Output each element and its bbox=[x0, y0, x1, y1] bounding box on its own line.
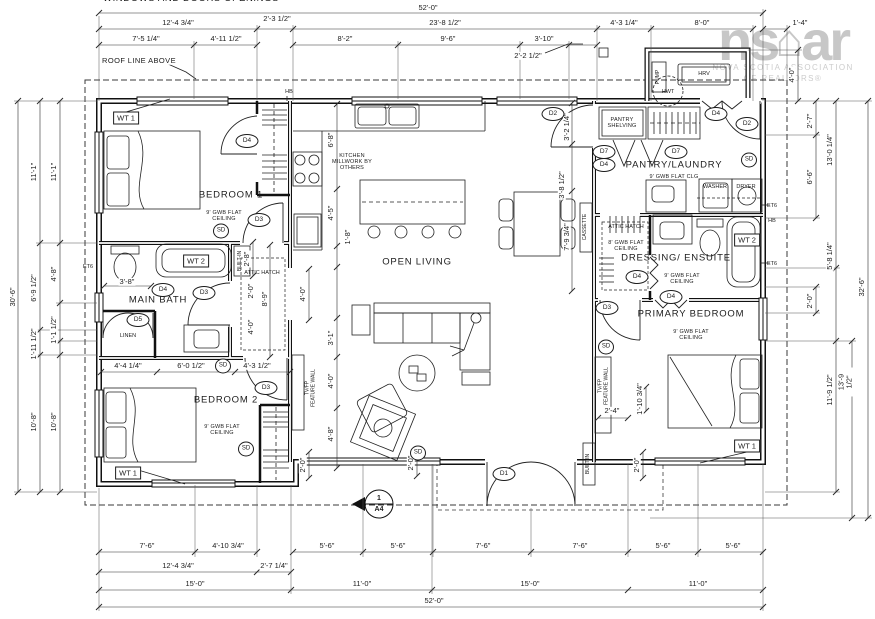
dimension-label: 4'-8" bbox=[50, 266, 58, 283]
dimension-label: 4'-0" bbox=[247, 319, 255, 336]
fixture-label: WASHER bbox=[703, 184, 727, 190]
dimension-label: 10'-8" bbox=[50, 411, 58, 432]
door-tag: D1 bbox=[493, 467, 516, 481]
dimension-label: 3'-2 1/4" bbox=[563, 112, 571, 141]
ceiling-note: KITCHEN MILLWORK BY OTHERS bbox=[332, 153, 372, 171]
dimension-label: 4'-10 3/4" bbox=[211, 542, 245, 550]
dimension-label: 3'-1" bbox=[327, 330, 335, 347]
smoke-detector-tag: SD bbox=[238, 442, 254, 457]
fixture-label: HB bbox=[285, 89, 293, 95]
door-tag: D4 bbox=[660, 290, 683, 304]
room-label: BEDROOM 2 bbox=[194, 396, 258, 407]
dimension-label: 2'-0" bbox=[633, 457, 641, 474]
dimension-label: 23'-8 1/2" bbox=[428, 19, 462, 27]
door-tag: D7 bbox=[665, 145, 688, 159]
dimension-label: 5'-6" bbox=[655, 542, 672, 550]
fixture-label: ET6 bbox=[767, 203, 777, 209]
fixture-label: ET6 bbox=[83, 264, 93, 270]
dimension-label: 6'-6" bbox=[806, 169, 814, 186]
dimension-label: 2'-0" bbox=[247, 283, 255, 300]
fixture-label: TV/FP FEATURE WALL bbox=[598, 367, 609, 405]
dimension-label: 2'-7 1/4" bbox=[259, 562, 288, 570]
dimension-label: 5'-6" bbox=[725, 542, 742, 550]
dimension-label: 1'-4" bbox=[792, 19, 809, 27]
roof-note: ROOF LINE ABOVE bbox=[102, 57, 176, 65]
smoke-detector-tag: SD bbox=[215, 359, 231, 374]
dimension-label: 7'-6" bbox=[572, 542, 589, 550]
dimension-label: 5'-6" bbox=[319, 542, 336, 550]
door-tag: D3 bbox=[255, 381, 278, 395]
ceiling-note: PANTRY SHELVING bbox=[607, 117, 636, 129]
ceiling-note: 8' GWB FLAT CEILING bbox=[608, 240, 644, 252]
smoke-detector-tag: SD bbox=[598, 340, 614, 355]
fixture-label: ET6 bbox=[767, 261, 777, 267]
dimension-label: 2'-7" bbox=[806, 113, 814, 130]
dimension-label: 9'-6" bbox=[440, 35, 457, 43]
fixture-label: TV/FP FEATURE WALL bbox=[305, 369, 316, 407]
door-tag: D5 bbox=[127, 313, 150, 327]
dimension-label: 11'-0" bbox=[688, 580, 709, 588]
door-tag: D4 bbox=[152, 283, 175, 297]
door-tag: D2 bbox=[736, 117, 759, 131]
dimension-label: 1'-1 1/2" bbox=[50, 315, 58, 344]
dimension-label: 1'-8" bbox=[344, 229, 352, 246]
door-tag: D3 bbox=[193, 286, 216, 300]
ceiling-note: 9' GWB FLAT CLG bbox=[649, 174, 698, 180]
door-tag: D3 bbox=[596, 301, 619, 315]
smoke-detector-tag: SD bbox=[410, 446, 426, 461]
floor-plan-sheet: WINDOWS AND DOORS OPENINGS ns ⌂ ar NOVA … bbox=[0, 0, 875, 619]
window-tag: WT 2 bbox=[183, 255, 209, 268]
dimension-label: 4'-11 1/2" bbox=[209, 35, 242, 43]
fixture-label: BUILT-IN bbox=[586, 454, 592, 474]
door-tag: D4 bbox=[626, 270, 649, 284]
door-tag: D4 bbox=[705, 107, 728, 121]
ceiling-note: 9' GWB FLAT CEILING bbox=[204, 424, 240, 436]
fixture-label: HB bbox=[768, 218, 776, 224]
dimension-label: 15'-0" bbox=[519, 580, 540, 588]
dimension-label: 10'-8" bbox=[30, 411, 38, 432]
dimension-label: 6'-0 1/2" bbox=[176, 362, 205, 370]
dimension-label: 12'-4 3/4" bbox=[161, 19, 195, 27]
dimension-label: 4'-5" bbox=[327, 205, 335, 222]
dimension-label: 52'-0" bbox=[417, 4, 438, 12]
dimension-label: 52'-0" bbox=[423, 597, 444, 605]
dimension-label: 1'-10 3/4" bbox=[636, 382, 644, 416]
room-label: PRIMARY BEDROOM bbox=[638, 310, 745, 321]
dimension-label: 1'-11 1/2" bbox=[30, 327, 38, 360]
fixture-label: CASSETTE bbox=[583, 214, 589, 240]
dimension-label: 8'-2" bbox=[337, 35, 354, 43]
dimension-label: 4'-0" bbox=[327, 373, 335, 390]
dimension-label: 4'-0" bbox=[299, 286, 307, 303]
fixture-label: ATTIC HATCH bbox=[608, 224, 644, 230]
door-tag: D7 bbox=[593, 145, 616, 159]
ceiling-note: 9' GWB FLAT CEILING bbox=[673, 329, 709, 341]
room-label: DRESSING/ ENSUITE bbox=[621, 254, 731, 265]
dimension-label: 4'-3 1/2" bbox=[242, 362, 271, 370]
dimension-label: 2'-0" bbox=[299, 457, 307, 474]
smoke-detector-tag: SD bbox=[741, 153, 757, 168]
fixture-label: PUMP bbox=[656, 70, 662, 84]
room-label: BEDROOM 1 bbox=[199, 191, 263, 202]
dimension-label: 2'-8" bbox=[243, 251, 251, 268]
section-marker-label: A4 bbox=[375, 506, 384, 514]
dimension-label: 15'-0" bbox=[184, 580, 205, 588]
door-tag: D2 bbox=[542, 107, 565, 121]
dimension-label: 4'-0" bbox=[788, 67, 796, 84]
smoke-detector-tag: SD bbox=[213, 224, 229, 239]
room-label: MAIN BATH bbox=[129, 296, 187, 307]
dimension-label: 3'-8" bbox=[119, 278, 136, 286]
fixture-label: HRV bbox=[698, 71, 710, 77]
door-tag: D4 bbox=[593, 158, 616, 172]
dimension-label: 3'-10" bbox=[533, 35, 554, 43]
window-tag: WT 1 bbox=[734, 440, 760, 453]
dimension-label: 8'-9" bbox=[261, 291, 269, 308]
fixture-label: BUILT-IN bbox=[238, 251, 244, 271]
door-tag: D3 bbox=[248, 213, 271, 227]
dimension-label: 12'-4 3/4" bbox=[161, 562, 195, 570]
dimension-label: 7'-6" bbox=[139, 542, 156, 550]
ceiling-note: 9' GWB FLAT CEILING bbox=[206, 210, 242, 222]
dimension-label: 7'-6" bbox=[475, 542, 492, 550]
dimension-label: 4'-4 1/4" bbox=[113, 362, 142, 370]
dimension-label: 11'-9 1/2" bbox=[826, 373, 834, 406]
window-tag: WT 1 bbox=[113, 112, 139, 125]
dimension-label: 2'-3 1/2" bbox=[262, 15, 291, 23]
dimension-label: 8'-0" bbox=[694, 19, 711, 27]
fixture-label: ATTIC HATCH bbox=[244, 270, 280, 276]
dimension-label: 13'-9 1/2" bbox=[838, 368, 855, 397]
room-label: PANTRY/LAUNDRY bbox=[626, 161, 723, 172]
dimension-label: 6'-9 1/2" bbox=[30, 273, 38, 302]
window-tag: WT 2 bbox=[734, 234, 760, 247]
dimension-label: 2'-2 1/2" bbox=[513, 52, 542, 60]
dimension-label: 11'-0" bbox=[352, 580, 373, 588]
dimension-label: 30'-6" bbox=[9, 286, 17, 307]
fixture-label: DRYER bbox=[736, 184, 755, 190]
dimension-label: 32'-6" bbox=[858, 276, 866, 297]
dimension-label: 11'-1" bbox=[50, 162, 58, 183]
dimension-label: 7'-9 3/4" bbox=[563, 222, 571, 251]
dimension-label: 3'-8 1/2" bbox=[558, 170, 566, 199]
ceiling-note: 9' GWB FLAT CEILING bbox=[664, 273, 700, 285]
fixture-label: HWT bbox=[662, 89, 675, 95]
room-label: OPEN LIVING bbox=[382, 258, 452, 269]
dimension-label: 4'-8" bbox=[327, 426, 335, 443]
dimension-label: 2'-4" bbox=[604, 407, 621, 415]
dimension-label: 11'-1" bbox=[30, 162, 38, 183]
section-marker-label: 1 bbox=[377, 495, 381, 503]
dimension-label: 4'-3 1/4" bbox=[609, 19, 638, 27]
window-tag: WT 1 bbox=[115, 467, 141, 480]
door-tag: D4 bbox=[236, 134, 259, 148]
fixture-label: LINEN bbox=[120, 333, 136, 339]
dimension-label: 5'-8 1/4" bbox=[826, 241, 834, 270]
dimension-label: 13'-0 1/4" bbox=[826, 133, 834, 167]
dimension-label: 7'-5 1/4" bbox=[131, 35, 160, 43]
dimension-label: 5'-6" bbox=[390, 542, 407, 550]
dimension-label: 2'-0" bbox=[806, 293, 814, 310]
annotation-layer: 52'-0"12'-4 3/4"2'-3 1/2"23'-8 1/2"4'-3 … bbox=[0, 0, 875, 619]
dimension-label: 6'-8" bbox=[327, 132, 335, 149]
